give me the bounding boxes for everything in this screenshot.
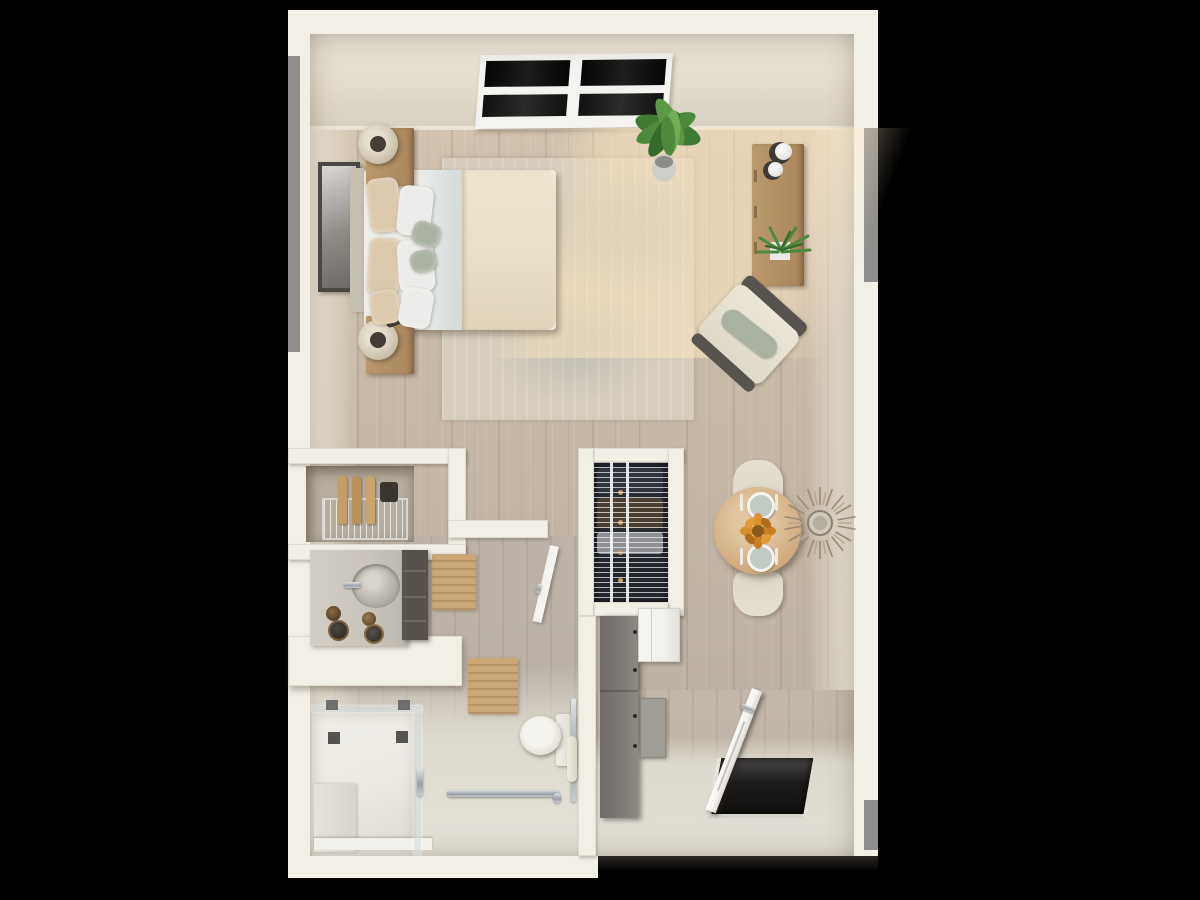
wire-shelf-lines (594, 462, 668, 602)
cabinet-handle (633, 744, 637, 748)
wood-bath-mat (432, 554, 476, 610)
bathroom-door-handle (536, 583, 542, 594)
fork-north (740, 494, 743, 511)
shower-door-handle (417, 768, 423, 796)
wire-basket-rack (322, 498, 408, 540)
wall-bath-entry-divider (578, 616, 596, 856)
table-lamp-north (358, 124, 398, 164)
shower-ceiling-fixture (396, 731, 408, 743)
drawer-seam (404, 620, 426, 622)
decor-sphere (768, 162, 783, 177)
wall-oven-panel (640, 698, 666, 758)
wall-nook-top (288, 448, 466, 464)
cabinet-seam (600, 690, 638, 692)
flower-centerpiece (740, 513, 776, 549)
knife-north (775, 494, 778, 511)
wire-shelf-rail (626, 462, 629, 602)
closet-interior (594, 462, 668, 602)
cabinet-handle (633, 630, 637, 634)
plant-leaves (632, 95, 704, 161)
mirror-glass-inner (813, 516, 827, 530)
knife-south (775, 548, 778, 565)
cabinet-handle (633, 668, 637, 672)
wood-bath-mat (468, 658, 518, 714)
horizontal-grab-bar (447, 790, 559, 797)
aloe-planter (756, 222, 814, 270)
outer-wall-side-face-right-low (864, 800, 878, 850)
wire-shelf-rail (610, 462, 613, 602)
toiletry-bottle (326, 606, 341, 621)
dark-canister (380, 482, 398, 502)
dining-chair-south (733, 572, 783, 616)
wall-bathroom-north (448, 520, 548, 538)
window-pane (482, 94, 568, 117)
sunburst-wall-mirror (780, 483, 860, 563)
wall-closet-right (668, 448, 684, 616)
plant-pot-soil (655, 156, 673, 168)
toilet-bowl (520, 716, 561, 755)
vanity-drawer-cabinet (402, 550, 428, 640)
fork-south (740, 548, 743, 565)
vanity-faucet (344, 582, 361, 588)
toiletry-bottle (330, 622, 347, 639)
outer-wall-side-face-left (288, 56, 300, 352)
cabinet-handle (633, 714, 637, 718)
refrigerator (638, 608, 680, 662)
floorplan-canvas (0, 0, 1200, 900)
cutting-board (352, 476, 361, 524)
cutting-board (366, 476, 375, 524)
flower-center (752, 525, 764, 537)
pillow-tan (368, 288, 403, 326)
outer-wall-side-face-right (864, 128, 878, 282)
shower-head (326, 700, 338, 710)
entry-door-handle (740, 703, 756, 713)
window-pane (484, 60, 570, 87)
window-pane (580, 59, 666, 86)
grab-bar-cushion (567, 736, 577, 782)
bottom-right-notch (598, 856, 878, 878)
lamp-finial (370, 332, 386, 348)
lamp-finial (370, 136, 386, 152)
east-wall-inner-face (808, 126, 854, 690)
floor-plant (628, 92, 708, 190)
decor-sphere (775, 143, 792, 160)
toiletry-bottle (366, 626, 382, 642)
shower-head (398, 700, 410, 710)
refrigerator-seam (651, 609, 652, 661)
tall-cabinet-run (600, 616, 638, 818)
shower-ceiling-fixture (328, 732, 340, 744)
toiletry-bottle (362, 612, 376, 626)
dresser-handle (754, 206, 757, 218)
bed-duvet (462, 170, 556, 330)
drawer-seam (404, 570, 426, 572)
dresser-handle (754, 170, 757, 182)
wall-closet-left (578, 448, 594, 616)
grab-bar-end-cap (553, 793, 561, 803)
cutting-board (338, 476, 347, 524)
drawer-seam (404, 596, 426, 598)
